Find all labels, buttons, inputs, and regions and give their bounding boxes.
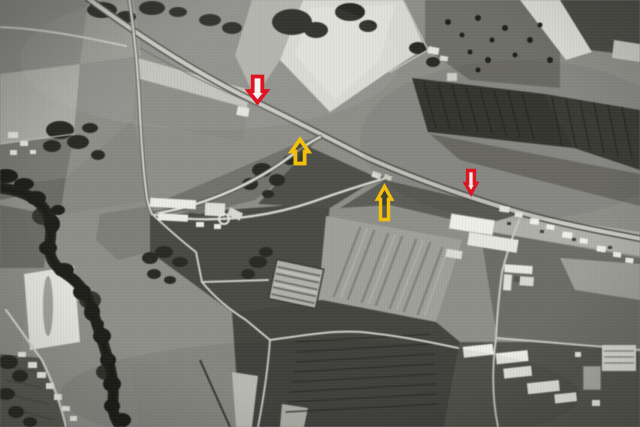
yellow-arrow-1-icon	[289, 137, 311, 166]
red-arrow-2-icon	[463, 168, 479, 196]
yellow-arrow-2-icon	[375, 184, 394, 222]
aerial-photo-background	[0, 0, 640, 427]
annotated-aerial-photograph	[0, 0, 640, 427]
red-arrow-1-icon	[246, 74, 269, 105]
